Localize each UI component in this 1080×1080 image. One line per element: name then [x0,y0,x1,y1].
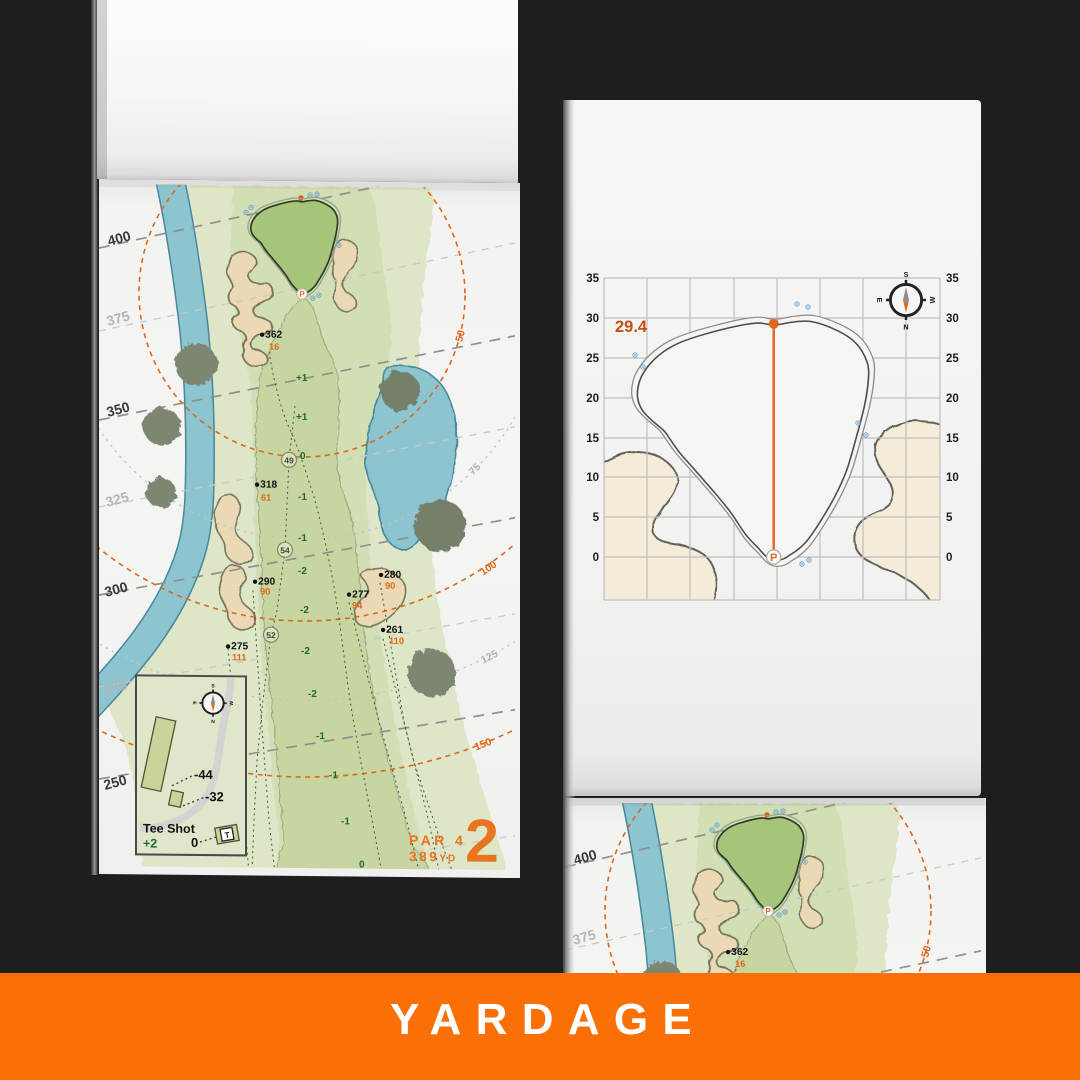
svg-text:30: 30 [946,313,959,325]
svg-text:YARDAGE: YARDAGE [390,995,706,1044]
svg-text:0: 0 [946,552,952,564]
svg-text:20: 20 [586,393,599,405]
svg-text:25: 25 [586,353,599,365]
svg-text:20: 20 [946,393,959,405]
svg-text:10: 10 [946,472,959,484]
svg-text:35: 35 [586,273,599,285]
svg-text:5: 5 [593,512,600,524]
svg-text:30: 30 [586,313,599,325]
svg-text:5: 5 [946,512,953,524]
svg-text:0: 0 [593,552,599,564]
svg-text:25: 25 [946,353,959,365]
svg-text:15: 15 [946,433,959,445]
svg-text:29.4: 29.4 [615,318,648,336]
svg-text:15: 15 [586,433,599,445]
svg-text:10: 10 [586,472,599,484]
svg-text:35: 35 [946,273,959,285]
